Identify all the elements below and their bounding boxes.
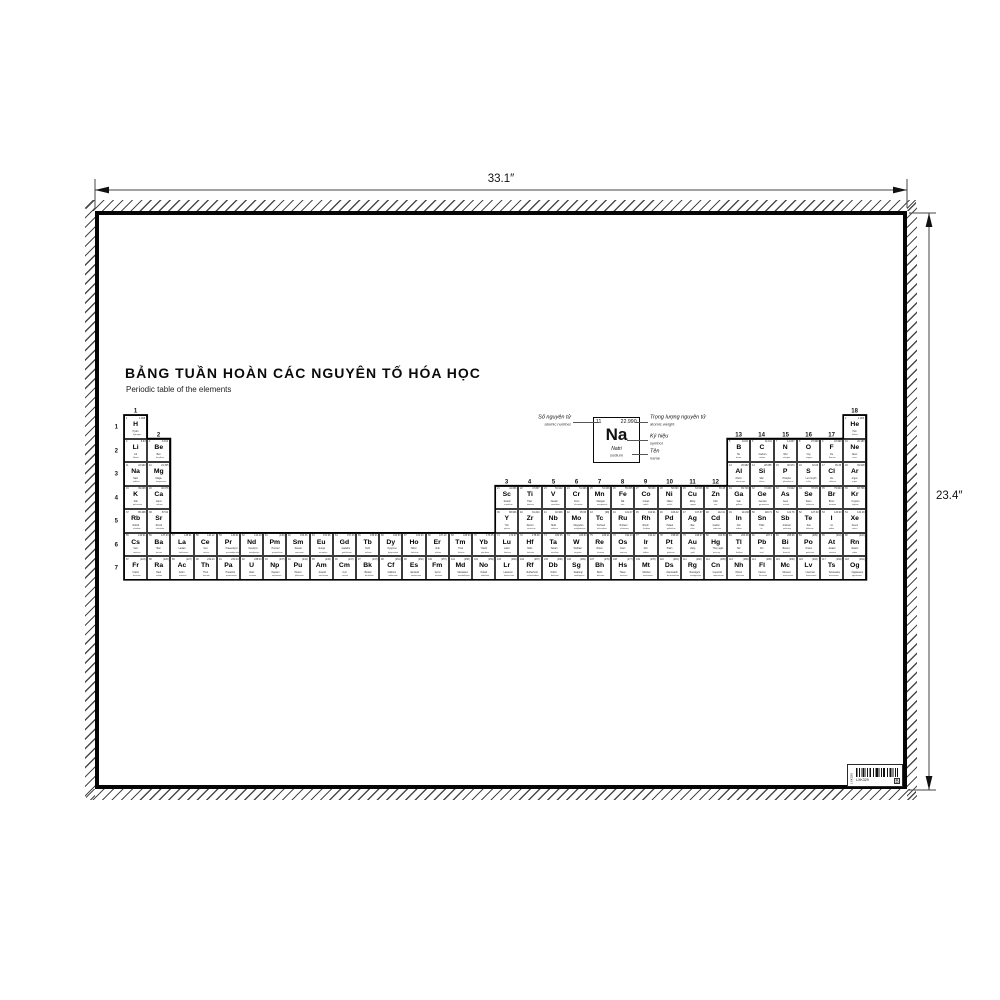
element-cell-Hf: 72178.49HfHafnihafnium (518, 533, 541, 557)
element-cell-P: 1530.974PPhotphophosphorus (774, 462, 797, 486)
element-symbol: Rn (844, 539, 865, 546)
element-cell-S: 1632.06SLưu huỳnhsulfur (797, 462, 820, 486)
element-symbol: Ru (612, 515, 633, 522)
element-symbol: Lu (496, 539, 517, 546)
element-cell-Tl: 81204.38TlTalithallium (727, 533, 750, 557)
group-label-16: 16 (803, 431, 815, 438)
element-symbol: No (473, 562, 494, 569)
element-symbol: Au (682, 539, 703, 546)
element-symbol: Hg (705, 539, 726, 546)
element-symbol: Cm (334, 562, 355, 569)
element-name-en: ruthenium (620, 527, 625, 529)
element-symbol: La (171, 539, 192, 546)
element-symbol: In (728, 515, 749, 522)
atomic-number: 27 (636, 487, 639, 490)
element-name-en: dysprosium (388, 551, 393, 553)
atomic-weight: (282) (696, 558, 702, 561)
element-symbol: Rg (682, 562, 703, 569)
element-name-vi: Rubidi (133, 524, 139, 527)
element-name-vi: Molypden (573, 524, 579, 527)
atomic-number: 98 (381, 558, 384, 561)
poster: BẢNG TUẦN HOÀN CÁC NGUYÊN TỐ HÓA HỌC Per… (95, 211, 907, 789)
element-symbol: Pb (751, 539, 772, 546)
element-name-en: bismuth (783, 551, 788, 553)
page-canvas: 33.1″ 23.4″ BẢNG TUẦN HOÀN CÁC NGUYÊN TỐ… (0, 0, 1000, 1000)
element-name-vi: Tantan (550, 547, 556, 550)
element-symbol: Li (125, 444, 146, 451)
element-symbol: Th (195, 562, 216, 569)
element-name-en: flerovium (759, 574, 764, 576)
legend-example-symbol: Na (594, 425, 639, 445)
element-name-vi: Rutherfordi (527, 571, 533, 574)
element-name-vi: Fermi (434, 571, 440, 574)
element-name-vi: Americi (318, 571, 324, 574)
element-cell-Xe: 54131.29XeXenonxenon (843, 509, 866, 533)
element-name-vi: Radi (156, 571, 162, 574)
element-name-en: yttrium (504, 527, 509, 529)
element-cell-Pm: 61(145)PmPrometipromethium (263, 533, 286, 557)
element-symbol: Ac (171, 562, 192, 569)
element-name-vi: Luteti (504, 547, 510, 550)
atomic-number: 39 (497, 511, 500, 514)
element-symbol: Mc (775, 562, 796, 569)
element-cell-Sr: 3887.62SrStrontistrontium (147, 509, 170, 533)
element-name-en: tin (759, 527, 764, 529)
atomic-weight: (267) (534, 558, 540, 561)
element-name-vi: Argon (852, 477, 858, 480)
element-name-en: tellurium (806, 527, 811, 529)
element-name-vi: Thori (202, 571, 208, 574)
element-name-vi: Clo (829, 477, 835, 480)
element-name-vi: Astatin (829, 547, 835, 550)
element-name-en: roentgenium (690, 574, 695, 576)
element-name-vi: Nobeli (481, 571, 487, 574)
element-name-en: samarium (295, 551, 300, 553)
element-name-en: lanthanum (179, 551, 184, 553)
atomic-number: 85 (822, 534, 825, 537)
legend-atomic-number-vi: Số nguyên tử (494, 414, 571, 420)
atomic-number: 93 (265, 558, 268, 561)
hatch-border-right (907, 200, 917, 800)
legend-symbol-en: symbol (650, 441, 667, 446)
element-name-vi: Iot (829, 524, 835, 527)
element-cell-Ta: 73180.95TaTantantantalum (542, 533, 565, 557)
element-name-vi: Thủy ngân (713, 547, 719, 550)
element-cell-Li: 36.94LiLitilithium (124, 439, 147, 463)
element-symbol: Cu (682, 491, 703, 498)
arrow-down-icon (926, 776, 933, 790)
element-name-en: thulium (458, 551, 463, 553)
element-name-en: germanium (759, 503, 764, 505)
element-name-en: iodine (829, 527, 834, 529)
group-label-15: 15 (779, 431, 791, 438)
element-name-vi: Hydro (133, 430, 139, 433)
element-name-en: boron (736, 456, 741, 458)
element-symbol: Cl (821, 468, 842, 475)
element-cell-Ti: 2247.867TiTitantitanium (518, 486, 541, 510)
element-symbol: S (798, 468, 819, 475)
atomic-weight: 137.33 (161, 534, 168, 537)
atomic-weight: 30.974 (787, 464, 794, 467)
atomic-number: 16 (799, 464, 802, 467)
element-symbol: Re (589, 539, 610, 546)
element-cell-Na: 1122.990NaNatrisodium (124, 462, 147, 486)
atomic-number: 21 (497, 487, 500, 490)
atomic-weight: (268) (557, 558, 563, 561)
element-cell-Fe: 2655.845FeSắtiron (611, 486, 634, 510)
atomic-weight: 24.305 (161, 464, 168, 467)
atomic-number: 117 (822, 558, 826, 561)
atomic-weight: 190.23 (625, 534, 632, 537)
element-name-vi: Moscovi (782, 571, 788, 574)
element-name-vi: Bạc (689, 524, 695, 527)
element-name-vi: Rheni (597, 547, 603, 550)
atomic-weight: 88.906 (509, 511, 516, 514)
element-cell-Zn: 3065.38ZnKẽmzinc (704, 486, 727, 510)
element-symbol: Al (728, 468, 749, 475)
atomic-number: 11 (126, 464, 128, 467)
atomic-weight: 20.180 (857, 440, 864, 443)
atomic-number: 80 (706, 534, 709, 537)
element-symbol: Zn (705, 491, 726, 498)
atomic-weight: (252) (418, 558, 424, 561)
element-cell-Ds: 110(281)DsDarmstadtidarmstadtium (658, 556, 681, 580)
element-symbol: At (821, 539, 842, 546)
element-name-en: moscovium (783, 574, 788, 576)
element-cell-Cm: 96(247)CmCuricurium (333, 556, 356, 580)
atomic-weight: 140.91 (231, 534, 238, 537)
atomic-number: 97 (358, 558, 361, 561)
atomic-weight: (227) (186, 558, 192, 561)
atomic-number: 1 (126, 417, 127, 420)
hatch-border-left (85, 200, 95, 800)
element-symbol: Cs (125, 539, 146, 546)
element-symbol: Mg (148, 468, 169, 475)
element-name-vi: Franci (133, 571, 139, 574)
atomic-number: 111 (683, 558, 687, 561)
atomic-number: 37 (126, 511, 129, 514)
element-name-en: praseodymium (226, 551, 231, 553)
group-label-13: 13 (733, 431, 745, 438)
atomic-number: 31 (729, 487, 732, 490)
element-symbol: Pt (659, 539, 680, 546)
element-name-en: titanium (527, 503, 532, 505)
element-cell-Pb: 82207.2PbChìlead (750, 533, 773, 557)
element-name-en: rhodium (643, 527, 648, 529)
atomic-number: 34 (799, 487, 802, 490)
element-cell-Cr: 2451.996CrCromchromium (565, 486, 588, 510)
element-name-vi: Roentgeni (689, 571, 695, 574)
element-cell-Br: 3579.904BrBrombromine (820, 486, 843, 510)
element-name-en: beryllium (156, 456, 161, 458)
element-symbol: Db (543, 562, 564, 569)
element-cell-Lv: 116(293)LvLivermorilivermorium (797, 556, 820, 580)
atomic-number: 91 (219, 558, 222, 561)
atomic-number: 64 (335, 534, 338, 537)
atomic-weight: 118.71 (764, 511, 771, 514)
element-name-en: bohrium (597, 574, 602, 576)
atomic-number: 48 (706, 511, 709, 514)
element-cell-Rh: 45102.91RhRhodirhodium (634, 509, 657, 533)
atomic-number: 18 (845, 464, 848, 467)
element-symbol: Rb (125, 515, 146, 522)
element-name-vi: Photpho (782, 477, 788, 480)
element-symbol: As (775, 491, 796, 498)
element-name-en: terbium (365, 551, 370, 553)
element-name-vi: Protactini (225, 571, 231, 574)
element-cell-Mc: 115(290)McMoscovimoscovium (774, 556, 797, 580)
element-name-en: plutonium (295, 574, 300, 576)
element-cell-Co: 2758.933CoCobancobalt (634, 486, 657, 510)
element-cell-Am: 95(243)AmAmericiamericium (310, 556, 333, 580)
element-name-en: rubidium (133, 527, 138, 529)
atomic-weight: 54.938 (602, 487, 609, 490)
atomic-weight: 167.26 (439, 534, 446, 537)
element-name-en: cadmium (713, 527, 718, 529)
poster-subtitle: Periodic table of the elements (126, 385, 231, 394)
barcode-check-letter: B (894, 778, 900, 784)
element-name-vi: Seaborgi (573, 571, 579, 574)
atomic-weight: 101.07 (625, 511, 632, 514)
element-symbol: Be (148, 444, 169, 451)
atomic-weight: 183.84 (579, 534, 586, 537)
atomic-number: 5 (729, 440, 730, 443)
element-cell-Tc: 43(98)TcTechnetitechnetium (588, 509, 611, 533)
element-symbol: F (821, 444, 842, 451)
element-name-en: cerium (203, 551, 208, 553)
atomic-number: 114 (752, 558, 756, 561)
atomic-number: 59 (219, 534, 222, 537)
atomic-weight: (290) (789, 558, 795, 561)
element-name-en: polonium (806, 551, 811, 553)
group-label-8: 8 (617, 478, 629, 485)
atomic-number: 62 (288, 534, 291, 537)
atomic-weight: 208.98 (787, 534, 794, 537)
legend-connector-line (632, 454, 648, 455)
element-symbol: Ga (728, 491, 749, 498)
atomic-weight: 196.97 (695, 534, 702, 537)
atomic-number: 13 (729, 464, 732, 467)
element-symbol: N (775, 444, 796, 451)
atomic-weight: (293) (812, 558, 818, 561)
atomic-number: 89 (172, 558, 175, 561)
element-name-en: arsenic (783, 503, 788, 505)
element-name-vi: Vàng (689, 547, 695, 550)
element-cell-Lu: 71174.97LuLutetilutetium (495, 533, 518, 557)
element-symbol: Hs (612, 562, 633, 569)
atomic-weight: 162.50 (393, 534, 400, 537)
element-symbol: H (125, 421, 146, 428)
element-name-en: berkelium (365, 574, 370, 576)
element-symbol: Tc (589, 515, 610, 522)
element-name-vi: Prometi (272, 547, 278, 550)
element-name-vi: Actini (179, 571, 185, 574)
period-label-2: 2 (111, 444, 119, 456)
atomic-number: 63 (312, 534, 315, 537)
element-name-en: hydrogen (133, 433, 138, 435)
atomic-weight: (247) (372, 558, 378, 561)
element-name-en: hafnium (527, 551, 532, 553)
atomic-number: 107 (590, 558, 594, 561)
barcode-stripes-icon (856, 768, 898, 777)
atomic-number: 9 (822, 440, 823, 443)
element-name-en: darmstadtium (667, 574, 672, 576)
element-cell-Mg: 1224.305MgMagiemagnesium (147, 462, 170, 486)
element-name-en: iridium (643, 551, 648, 553)
atomic-weight: (270) (604, 558, 610, 561)
element-cell-Ce: 58140.12CeCericerium (194, 533, 217, 557)
element-cell-Sm: 62150.36SmSamarisamarium (286, 533, 309, 557)
element-cell-I: 53126.90IIotiodine (820, 509, 843, 533)
element-cell-Hg: 80200.59HgThủy ngânmercury (704, 533, 727, 557)
element-name-en: nobelium (481, 574, 486, 576)
atomic-weight: 85.468 (138, 511, 145, 514)
atomic-number: 43 (590, 511, 593, 514)
element-name-vi: Indi (736, 524, 742, 527)
element-name-en: meitnerium (643, 574, 648, 576)
element-name-en: bromine (829, 503, 834, 505)
atomic-number: 3 (126, 440, 127, 443)
element-name-en: zirconium (527, 527, 532, 529)
element-symbol: Bi (775, 539, 796, 546)
legend-label-atomic-number: Số nguyên tử atomic number (431, 414, 571, 431)
element-name-en: magnesium (156, 480, 161, 482)
element-cell-Hs: 108(277)HsHassihassium (611, 556, 634, 580)
element-name-en: silicon (759, 480, 764, 482)
element-name-vi: Ceri (202, 547, 208, 550)
element-name-en: potassium (133, 503, 138, 505)
arrow-left-icon (95, 187, 109, 194)
element-cell-At: 85(210)AtAstatinastatine (820, 533, 843, 557)
atomic-number: 92 (242, 558, 245, 561)
atomic-number: 36 (845, 487, 848, 490)
element-symbol: Pr (218, 539, 239, 546)
element-cell-Fl: 114(289)FlFleroviflerovium (750, 556, 773, 580)
period-label-5: 5 (111, 515, 119, 527)
atomic-number: 71 (497, 534, 500, 537)
element-cell-Cu: 2963.546CuĐồngcopper (681, 486, 704, 510)
element-symbol: Hf (519, 539, 540, 546)
element-name-en: neodymium (249, 551, 254, 553)
atomic-number: 65 (358, 534, 361, 537)
element-name-vi: Berkeli (365, 571, 371, 574)
legend-example-name-vi: Natri (605, 446, 628, 452)
element-symbol: Sg (566, 562, 587, 569)
atomic-number: 23 (544, 487, 547, 490)
element-name-en: holmium (411, 551, 416, 553)
element-name-vi: Antimon (782, 524, 788, 527)
element-name-en: astatine (829, 551, 834, 553)
atomic-weight: (209) (812, 534, 818, 537)
element-symbol: Mo (566, 515, 587, 522)
element-name-vi: Oganesson (852, 571, 858, 574)
element-name-en: actinium (179, 574, 184, 576)
element-name-vi: Stronti (156, 524, 162, 527)
element-name-vi: Neodymi (249, 547, 255, 550)
legend-label-name: Tên name (650, 448, 670, 465)
atomic-weight: (226) (163, 558, 169, 561)
element-name-vi: Platin (666, 547, 672, 550)
element-name-vi: Hassi (620, 571, 626, 574)
element-cell-Au: 79196.97AuVànggold (681, 533, 704, 557)
atomic-weight: 140.12 (207, 534, 214, 537)
element-name-en: vanadium (551, 503, 556, 505)
element-cell-Ca: 2040.078CaCanxicalcium (147, 486, 170, 510)
element-cell-Ar: 1839.948ArArgonargon (843, 462, 866, 486)
element-name-en: antimony (783, 527, 788, 529)
element-cell-Ts: 117(294)TsTennessinetennessine (820, 556, 843, 580)
atomic-weight: 15.999 (811, 440, 818, 443)
atomic-number: 103 (497, 558, 501, 561)
atomic-weight: 91.224 (532, 511, 539, 514)
element-cell-Se: 3478.971SeSelenselenium (797, 486, 820, 510)
element-symbol: U (241, 562, 262, 569)
element-name-en: lawrencium (504, 574, 509, 576)
element-cell-Sg: 106(269)SgSeaborgiseaborgium (565, 556, 588, 580)
element-name-en: radon (852, 551, 857, 553)
element-symbol: Yb (473, 539, 494, 546)
element-cell-Re: 75186.21ReRhenirhenium (588, 533, 611, 557)
element-symbol: Fm (427, 562, 448, 569)
element-cell-Pt: 78195.08PtPlatinplatinum (658, 533, 681, 557)
element-symbol: Pm (264, 539, 285, 546)
atomic-weight: 50.942 (555, 487, 562, 490)
element-symbol: Ce (195, 539, 216, 546)
legend-connector-line (635, 422, 648, 423)
element-cell-Ba: 56137.33BaBaribarium (147, 533, 170, 557)
element-symbol: Eu (311, 539, 332, 546)
atomic-weight: (98) (605, 511, 609, 514)
atomic-number: 61 (265, 534, 268, 537)
element-cell-K: 1939.098KKalipotassium (124, 486, 147, 510)
atomic-number: 113 (729, 558, 733, 561)
element-cell-Tm: 69168.93TmThulithulium (449, 533, 472, 557)
element-cell-Bk: 97(247)BkBerkeliberkelium (356, 556, 379, 580)
element-name-en: selenium (806, 503, 811, 505)
atomic-number: 54 (845, 511, 848, 514)
element-name-vi: Lawrenci (504, 571, 510, 574)
atomic-number: 105 (544, 558, 548, 561)
element-name-en: oganesson (852, 574, 857, 576)
element-symbol: Md (450, 562, 471, 569)
element-symbol: Lr (496, 562, 517, 569)
atomic-weight: 174.97 (509, 534, 516, 537)
legend-atomic-weight-vi: Trọng lượng nguyên tử (650, 414, 706, 420)
atomic-number: 15 (776, 464, 779, 467)
atomic-weight: (278) (650, 558, 656, 561)
element-name-vi: Cadimi (713, 524, 719, 527)
atomic-weight: 132.91 (138, 534, 145, 537)
atomic-weight: 178.49 (532, 534, 539, 537)
atomic-weight: 192.22 (648, 534, 655, 537)
atomic-number: 30 (706, 487, 709, 490)
element-name-en: nitrogen (783, 456, 788, 458)
element-name-en: hassium (620, 574, 625, 576)
element-name-vi: Iridi (643, 547, 649, 550)
element-name-vi: Thiếc (759, 524, 765, 527)
element-name-en: chromium (574, 503, 579, 505)
atomic-weight: 4.003 (858, 417, 864, 420)
element-name-en: livermorium (806, 574, 811, 576)
element-cell-Ho: 67164.93HoHolmiholmium (402, 533, 425, 557)
element-name-vi: Curi (341, 571, 347, 574)
element-cell-Al: 1326.982AlNhômaluminium (727, 462, 750, 486)
element-cell-Ac: 89(227)AcActiniactinium (170, 556, 193, 580)
element-name-en: mercury (713, 551, 718, 553)
atomic-weight: 47.867 (532, 487, 539, 490)
element-name-vi: Niobi (550, 524, 556, 527)
atomic-weight: (210) (836, 534, 842, 537)
